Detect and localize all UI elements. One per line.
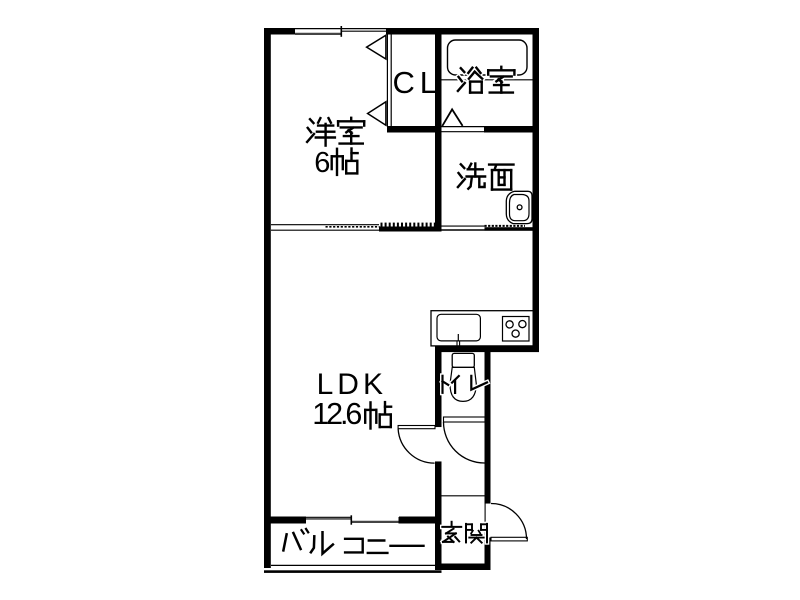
svg-text:CL: CL	[393, 65, 442, 100]
svg-text:12.6: 12.6	[312, 397, 361, 431]
svg-text:6: 6	[314, 147, 330, 179]
